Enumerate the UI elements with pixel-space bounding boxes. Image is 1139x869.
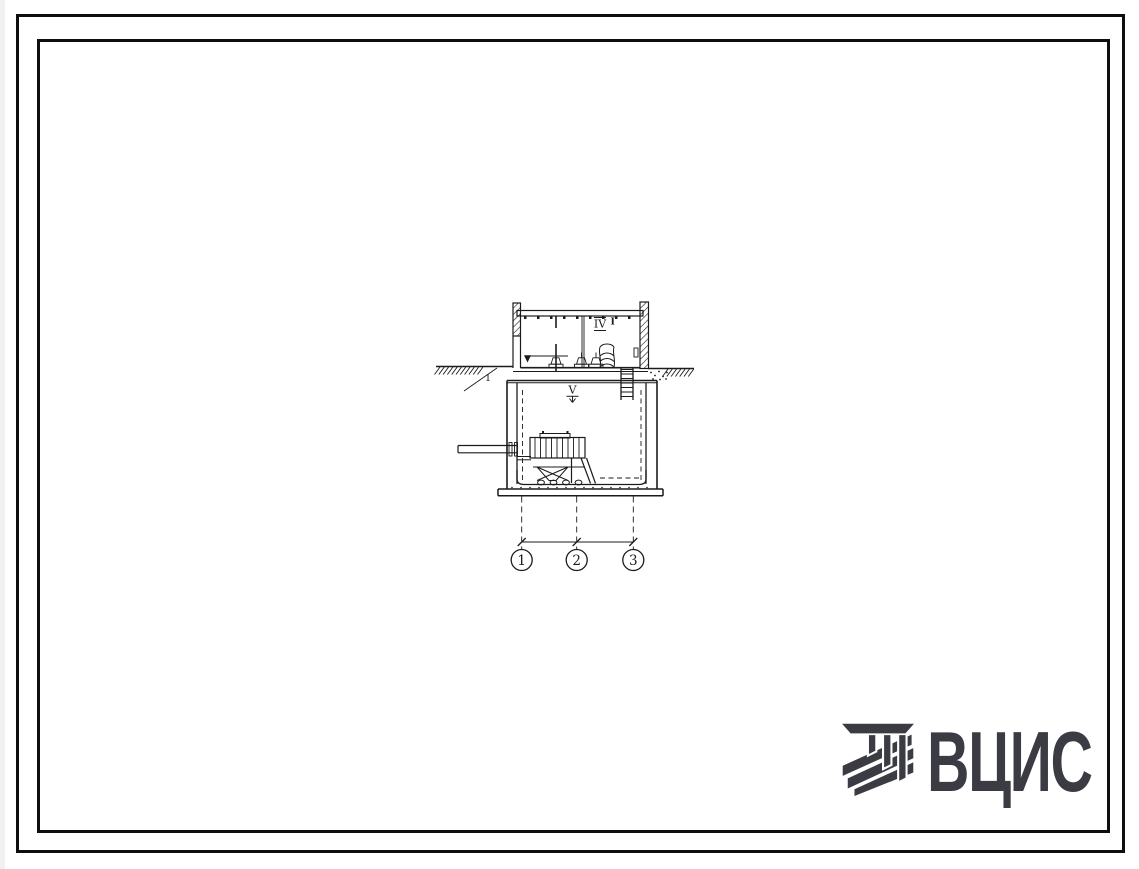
floor-mark: V <box>567 384 579 403</box>
flexible-vent-pipe <box>599 344 614 367</box>
inlet-pipe <box>458 443 518 457</box>
axis-bubble-2-label: 2 <box>572 553 581 569</box>
axis-bubble-1-label: 1 <box>517 553 526 569</box>
room-mark-index: I <box>611 317 616 328</box>
axis-grid: 1 2 3 <box>511 497 644 571</box>
floor-mark-label: V <box>568 384 578 397</box>
partition <box>582 316 584 369</box>
ground-item-label: 1 <box>485 373 491 384</box>
wall-bracket <box>634 348 638 357</box>
axis-bubble-2: 2 <box>566 550 587 571</box>
vcis-logo-text: ВЦИС <box>927 729 1092 796</box>
roof-slab <box>517 311 643 317</box>
level-mark <box>524 355 568 362</box>
axis-bubble-3: 3 <box>623 550 644 571</box>
left-wall <box>513 303 521 336</box>
vcis-logo-icon <box>837 712 919 796</box>
room-mark-label: IV <box>594 318 607 331</box>
grating-tank <box>530 438 585 459</box>
axis-bubble-1: 1 <box>511 550 532 571</box>
right-wall <box>640 302 649 369</box>
axis-bubble-3-label: 3 <box>629 553 638 569</box>
ground-line-right <box>648 369 694 381</box>
underground-chamber <box>498 381 663 496</box>
pump-equipment <box>458 431 596 485</box>
grating-bars <box>535 438 579 459</box>
room-mark: IV I <box>594 317 616 331</box>
ground-floor-slab: V <box>513 353 648 403</box>
floor-dots <box>511 487 648 489</box>
pavilion: IV I <box>513 302 649 372</box>
base-slab <box>498 489 663 496</box>
discharge-chute <box>581 458 596 484</box>
vcis-logo: ВЦИС <box>837 712 1139 796</box>
ground-line-left: 1 <box>435 367 514 392</box>
floor-valve <box>575 353 589 368</box>
hopper <box>533 458 585 483</box>
wall-shelf <box>517 457 531 460</box>
